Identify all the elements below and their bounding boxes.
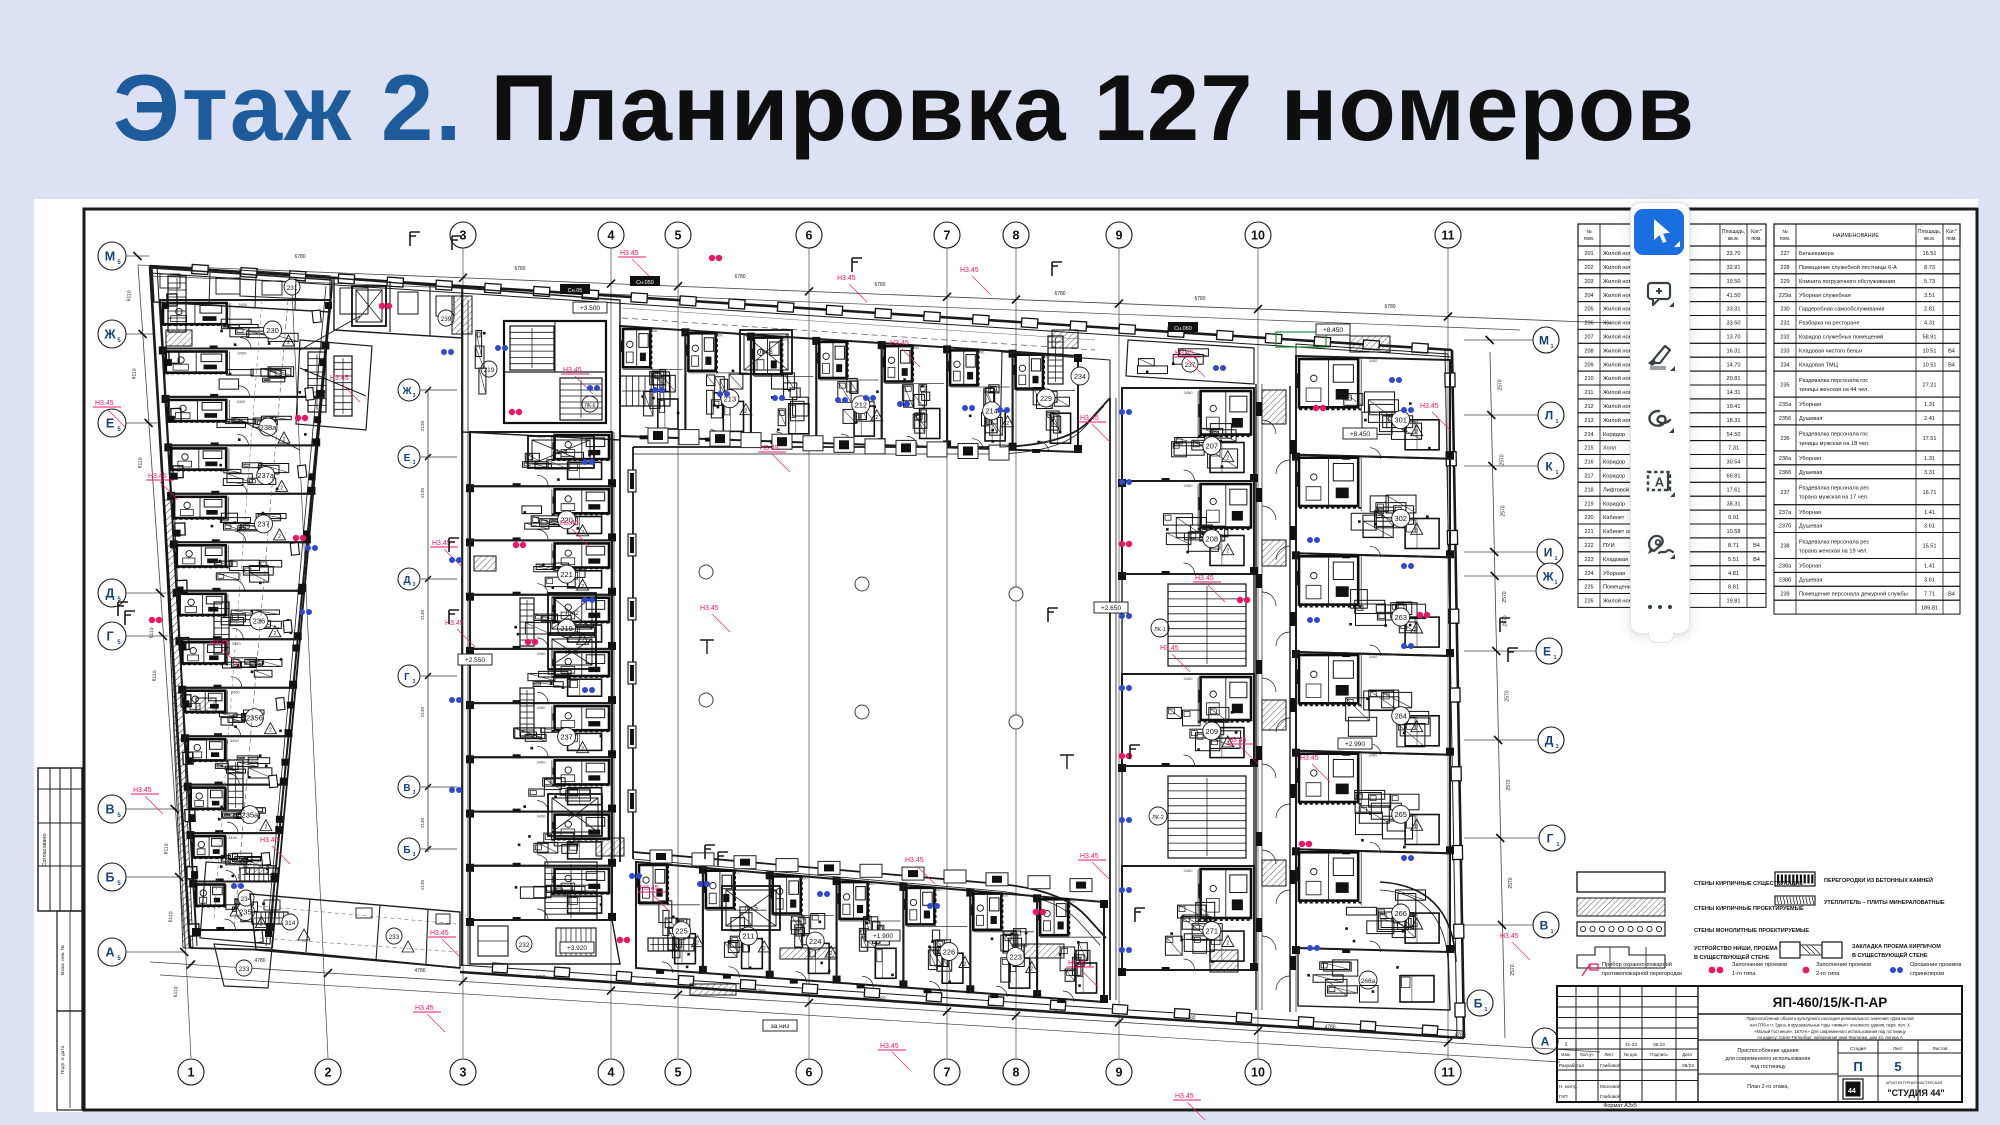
svg-text:6780: 6780: [874, 282, 885, 288]
svg-text:2: 2: [1006, 421, 1009, 427]
svg-text:302: 302: [1394, 514, 1407, 523]
svg-text:2570: 2570: [1503, 615, 1509, 626]
svg-text:237а: 237а: [1779, 510, 1792, 516]
svg-text:№ док.: № док.: [1624, 1052, 1638, 1057]
svg-text:Ж: Ж: [103, 328, 116, 342]
svg-text:7: 7: [944, 1066, 951, 1080]
svg-text:7.71: 7.71: [1924, 591, 1935, 597]
svg-text:6: 6: [806, 229, 813, 243]
svg-text:Кладовая чистого белья: Кладовая чистого белья: [1799, 348, 1862, 354]
svg-text:8: 8: [1013, 1066, 1020, 1080]
svg-text:Н3.45: Н3.45: [1420, 403, 1439, 410]
svg-text:6110: 6110: [168, 911, 175, 922]
svg-text:Н3.45: Н3.45: [148, 473, 167, 480]
svg-text:Н3.45: Н3.45: [95, 400, 114, 407]
svg-text:209: 209: [1206, 727, 1219, 736]
svg-text:3450: 3450: [537, 759, 547, 764]
svg-text:Кабинет: Кабинет: [1603, 515, 1625, 521]
svg-text:3: 3: [413, 393, 416, 399]
svg-text:229: 229: [1040, 396, 1052, 403]
svg-text:Уборная: Уборная: [1799, 564, 1821, 570]
svg-text:"СТУДИЯ 44": "СТУДИЯ 44": [1887, 1088, 1944, 1098]
svg-text:2: 2: [325, 1066, 332, 1080]
svg-text:2: 2: [287, 340, 290, 346]
svg-text:66.81: 66.81: [1727, 474, 1741, 480]
svg-text:3450: 3450: [1369, 654, 1379, 659]
svg-text:Н3.45: Н3.45: [210, 640, 229, 647]
svg-text:Подп. и дата: Подп. и дата: [60, 1046, 66, 1075]
svg-text:Бельекамера: Бельекамера: [1799, 251, 1835, 257]
svg-text:209: 209: [1584, 362, 1593, 368]
svg-text:41.50: 41.50: [1727, 293, 1741, 299]
svg-text:Душевая: Душевая: [1799, 524, 1822, 530]
svg-text:6780: 6780: [734, 274, 745, 280]
svg-text:230: 230: [1780, 307, 1789, 313]
svg-text:3: 3: [460, 1066, 467, 1080]
svg-text:263: 263: [1394, 613, 1407, 622]
svg-text:264: 264: [1394, 712, 1407, 721]
svg-text:ЯП-460/15/К-П-АР: ЯП-460/15/К-П-АР: [1773, 995, 1888, 1010]
svg-text:2130: 2130: [420, 487, 425, 498]
svg-text:+8.450: +8.450: [1350, 431, 1370, 438]
svg-text:тиницы мужская на 18 чел.: тиницы мужская на 18 чел.: [1799, 441, 1870, 447]
svg-text:4780: 4780: [254, 958, 265, 964]
svg-text:3450: 3450: [1184, 868, 1194, 873]
svg-text:Н3.45: Н3.45: [563, 367, 582, 374]
svg-text:3: 3: [413, 790, 416, 796]
svg-text:3450: 3450: [1184, 390, 1194, 395]
svg-text:15.51: 15.51: [1923, 544, 1937, 550]
svg-text:58.91: 58.91: [1923, 335, 1937, 341]
svg-text:211: 211: [742, 932, 754, 941]
svg-text:Н3.45: Н3.45: [880, 1043, 899, 1050]
svg-text:Кат.*: Кат.*: [1751, 229, 1762, 235]
svg-text:Уборная: Уборная: [1799, 402, 1821, 408]
svg-text:Г: Г: [404, 672, 410, 683]
svg-text:14.31: 14.31: [1727, 390, 1741, 396]
svg-text:2: 2: [964, 962, 967, 968]
svg-text:3450: 3450: [999, 893, 1009, 898]
svg-text:1: 1: [1555, 744, 1558, 750]
svg-text:189.81: 189.81: [1921, 605, 1938, 611]
svg-text:05/23: 05/23: [1682, 1063, 1694, 1068]
svg-text:220: 220: [1584, 515, 1593, 521]
svg-text:233: 233: [239, 966, 250, 973]
svg-text:8: 8: [1013, 229, 1020, 243]
svg-text:301: 301: [1394, 416, 1407, 425]
svg-text:3450: 3450: [732, 870, 742, 875]
svg-text:4780: 4780: [414, 968, 425, 974]
svg-text:кв.м.: кв.м.: [1924, 236, 1935, 242]
svg-text:265: 265: [1394, 810, 1407, 819]
svg-text:+2.650: +2.650: [1101, 605, 1121, 612]
svg-text:8.73: 8.73: [1924, 265, 1935, 271]
svg-text:2: 2: [581, 747, 584, 753]
svg-text:5: 5: [675, 1066, 682, 1080]
svg-text:33.70: 33.70: [1727, 251, 1741, 257]
svg-text:3450: 3450: [1184, 676, 1194, 681]
svg-text:3450: 3450: [232, 641, 242, 646]
svg-text:Лп-5: Лп-5: [744, 905, 758, 912]
svg-text:торана мужская на 17 чел.: торана мужская на 17 чел.: [1799, 495, 1869, 501]
svg-text:Н3.45: Н3.45: [445, 620, 464, 627]
svg-text:6110: 6110: [131, 368, 138, 379]
svg-text:41-23: 41-23: [1625, 1042, 1637, 1047]
svg-text:Н3.45: Н3.45: [1175, 350, 1194, 357]
svg-text:В: В: [403, 783, 410, 794]
svg-text:2: 2: [1415, 923, 1418, 929]
svg-text:2570: 2570: [1506, 779, 1512, 790]
svg-text:211: 211: [1585, 390, 1594, 396]
svg-text:2: 2: [875, 415, 878, 421]
svg-text:2: 2: [696, 941, 699, 947]
svg-text:Лп-1: Лп-1: [565, 649, 579, 656]
svg-text:1.31: 1.31: [1924, 402, 1935, 408]
svg-text:Кол.уч: Кол.уч: [1580, 1052, 1593, 1057]
svg-text:Уборная служебная: Уборная служебная: [1799, 293, 1851, 299]
svg-text:Н3.45: Н3.45: [1080, 415, 1099, 422]
svg-text:противопожарной перегородки: противопожарной перегородки: [1602, 970, 1682, 977]
svg-text:2: 2: [265, 825, 268, 831]
svg-text:ПЕРЕГОРОДКИ ИЗ БЕТОННЫХ КАМНЕЙ: ПЕРЕГОРОДКИ ИЗ БЕТОННЫХ КАМНЕЙ: [1824, 876, 1933, 884]
svg-text:Раздевалка персонала гос: Раздевалка персонала гос: [1799, 432, 1868, 438]
svg-text:20.81: 20.81: [1727, 376, 1741, 382]
svg-text:Приспособление объекта культур: Приспособление объекта культурного насле…: [1746, 1016, 1914, 1021]
svg-text:6: 6: [806, 1066, 813, 1080]
svg-text:Ж: Ж: [1542, 570, 1554, 584]
svg-text:торана женская на 19 чел.: торана женская на 19 чел.: [1799, 549, 1868, 555]
svg-text:3450: 3450: [1066, 898, 1076, 903]
svg-text:Д: Д: [1545, 734, 1554, 748]
svg-text:Д: Д: [403, 575, 410, 586]
svg-text:2: 2: [1415, 726, 1418, 732]
svg-text:3450: 3450: [537, 705, 547, 710]
svg-text:3450: 3450: [648, 328, 658, 333]
svg-text:7.31: 7.31: [1728, 446, 1739, 452]
svg-text:3: 3: [413, 852, 416, 858]
svg-text:4.31: 4.31: [1924, 321, 1935, 327]
svg-text:В4: В4: [1948, 362, 1955, 368]
svg-text:1: 1: [1565, 1042, 1568, 1048]
svg-text:238а: 238а: [260, 423, 278, 432]
svg-text:218: 218: [1584, 487, 1593, 493]
svg-text:221: 221: [560, 570, 573, 579]
svg-text:6780: 6780: [1194, 296, 1205, 302]
svg-text:5: 5: [1894, 1059, 1901, 1074]
svg-text:239: 239: [1780, 591, 1789, 597]
svg-text:Площадь,: Площадь,: [1722, 229, 1745, 235]
svg-text:204: 204: [1584, 293, 1593, 299]
svg-text:Коридор: Коридор: [1603, 432, 1625, 438]
svg-text:3450: 3450: [799, 875, 809, 880]
svg-text:В4: В4: [1753, 557, 1760, 563]
svg-text:225: 225: [675, 927, 688, 936]
svg-text:10.58: 10.58: [1727, 529, 1741, 535]
svg-text:1: 1: [1554, 556, 1557, 562]
svg-text:План 2-го этажа,: План 2-го этажа,: [1747, 1084, 1789, 1090]
svg-text:Уборная: Уборная: [1799, 510, 1821, 516]
svg-text:В4: В4: [1948, 591, 1955, 597]
svg-text:Взам. инв. №: Взам. инв. №: [60, 945, 66, 975]
svg-text:+8.450: +8.450: [1323, 327, 1343, 334]
svg-text:38.31: 38.31: [1727, 501, 1741, 507]
svg-text:237а: 237а: [257, 471, 275, 480]
svg-text:3.61: 3.61: [1924, 578, 1935, 584]
svg-text:пом.: пом.: [1780, 236, 1790, 242]
svg-text:235: 235: [239, 907, 252, 916]
svg-text:Д: Д: [106, 587, 115, 601]
svg-text:8.81: 8.81: [1728, 585, 1739, 591]
svg-text:3450: 3450: [1369, 358, 1379, 363]
svg-text:Кат.*: Кат.*: [1946, 229, 1957, 235]
svg-text:Коридор: Коридор: [1603, 474, 1625, 480]
svg-text:Листов: Листов: [1933, 1046, 1948, 1051]
svg-text:6110: 6110: [152, 670, 159, 681]
svg-text:201: 201: [1584, 251, 1593, 257]
svg-text:3450: 3450: [932, 887, 942, 892]
svg-text:К: К: [1545, 460, 1553, 474]
svg-text:1: 1: [1555, 419, 1558, 425]
svg-text:230: 230: [266, 326, 279, 335]
svg-text:3450: 3450: [537, 814, 547, 819]
svg-text:18.31: 18.31: [1727, 418, 1741, 424]
svg-text:Коридор: Коридор: [1603, 501, 1625, 507]
svg-text:217: 217: [1584, 474, 1593, 480]
svg-text:3: 3: [413, 679, 416, 685]
svg-text:+2.550: +2.550: [465, 657, 485, 664]
svg-text:213: 213: [1584, 418, 1593, 424]
svg-text:2: 2: [1415, 824, 1418, 830]
svg-text:3450: 3450: [228, 835, 238, 840]
svg-text:2130: 2130: [420, 817, 425, 828]
svg-text:232: 232: [1780, 335, 1789, 341]
svg-text:Коридор служебных помещений: Коридор служебных помещений: [1799, 334, 1883, 341]
svg-text:6780: 6780: [294, 254, 305, 260]
svg-text:A: A: [1655, 475, 1665, 490]
svg-text:9: 9: [1116, 229, 1123, 243]
svg-text:Помещение персонала дежурной с: Помещение персонала дежурной службы: [1799, 590, 1908, 597]
svg-text:Уборная: Уборная: [1799, 456, 1821, 462]
svg-text:1: 1: [1554, 580, 1557, 586]
svg-text:+3.500: +3.500: [580, 305, 600, 312]
svg-text:М: М: [105, 250, 115, 264]
svg-text:266: 266: [1394, 909, 1407, 918]
svg-text:2: 2: [1226, 941, 1229, 947]
svg-text:226: 226: [1584, 599, 1593, 605]
svg-text:2130: 2130: [420, 420, 425, 431]
svg-text:208: 208: [1584, 348, 1593, 354]
svg-text:234: 234: [1780, 362, 1789, 368]
svg-text:2: 2: [1415, 528, 1418, 534]
svg-text:3: 3: [413, 582, 416, 588]
svg-text:кв.м.: кв.м.: [1728, 236, 1739, 242]
svg-text:Н3.45: Н3.45: [1300, 755, 1319, 762]
svg-text:2: 2: [278, 534, 281, 540]
svg-text:2570: 2570: [1510, 964, 1516, 975]
svg-text:Кладовая: Кладовая: [1603, 557, 1628, 563]
svg-text:2: 2: [581, 530, 584, 536]
svg-text:3450: 3450: [236, 399, 246, 404]
svg-text:4: 4: [608, 229, 615, 243]
svg-text:Уборная: Уборная: [1603, 571, 1625, 577]
svg-text:216: 216: [1584, 460, 1593, 466]
svg-text:Ж: Ж: [401, 386, 412, 397]
svg-text:227: 227: [1780, 251, 1789, 257]
svg-text:3450: 3450: [237, 351, 247, 356]
svg-text:232: 232: [519, 942, 530, 949]
svg-text:2: 2: [274, 631, 277, 637]
svg-text:Б: Б: [1474, 997, 1483, 1011]
svg-text:за.низ: за.низ: [771, 1023, 790, 1030]
svg-text:Н3.45: Н3.45: [1195, 575, 1214, 582]
svg-text:30.54: 30.54: [1727, 460, 1741, 466]
svg-text:3450: 3450: [1369, 753, 1379, 758]
svg-text:229а: 229а: [1779, 293, 1792, 299]
svg-text:32.91: 32.91: [1727, 265, 1741, 271]
svg-text:Сн.05: Сн.05: [568, 288, 583, 294]
svg-text:6780: 6780: [1054, 291, 1065, 297]
svg-text:9: 9: [1116, 1066, 1123, 1080]
svg-text:Н3.45: Н3.45: [430, 930, 449, 937]
svg-text:2130: 2130: [420, 706, 425, 717]
svg-text:Н3.45: Н3.45: [640, 885, 659, 892]
svg-text:+2.990: +2.990: [1345, 741, 1365, 748]
svg-text:спринклером: спринклером: [1910, 971, 1944, 977]
svg-text:Орошение проемов: Орошение проемов: [1910, 962, 1961, 968]
svg-text:239: 239: [441, 316, 452, 323]
svg-text:Душевая: Душевая: [1799, 578, 1822, 584]
svg-text:19.41: 19.41: [1727, 404, 1741, 410]
svg-text:236б: 236б: [1779, 470, 1792, 476]
svg-text:224: 224: [1584, 571, 1593, 577]
svg-text:237: 237: [1185, 362, 1196, 369]
svg-text:233: 233: [389, 934, 400, 941]
svg-text:2570: 2570: [1502, 591, 1508, 602]
svg-text:Прибор охранно-пожарной: Прибор охранно-пожарной: [1602, 961, 1672, 968]
svg-text:№: №: [1782, 229, 1787, 235]
svg-text:под гостиницу: под гостиницу: [1750, 1064, 1786, 1070]
svg-text:Согласовано: Согласовано: [42, 833, 48, 866]
svg-text:Глибовой: Глибовой: [1600, 1093, 1621, 1099]
svg-text:Заполнение проемов: Заполнение проемов: [1732, 962, 1787, 968]
svg-text:3450: 3450: [714, 332, 724, 337]
svg-text:1: 1: [1553, 655, 1556, 661]
svg-text:Лп-2: Лп-2: [565, 610, 579, 617]
svg-text:2570: 2570: [1500, 505, 1506, 516]
svg-text:7: 7: [944, 229, 951, 243]
svg-text:2-го типа: 2-го типа: [1816, 971, 1840, 977]
svg-text:224: 224: [809, 937, 822, 946]
svg-text:3.51: 3.51: [1924, 293, 1935, 299]
svg-text:Н3.45: Н3.45: [560, 520, 579, 527]
svg-text:Раздевалка персонала рес: Раздевалка персонала рес: [1799, 539, 1870, 545]
svg-text:05.23: 05.23: [1653, 1042, 1665, 1047]
svg-text:236: 236: [1780, 436, 1789, 442]
svg-text:2130: 2130: [420, 609, 425, 620]
svg-text:Н3.45: Н3.45: [260, 837, 279, 844]
svg-text:АРХИТЕКТУРНАЯ МАСТЕРСКАЯ: АРХИТЕКТУРНАЯ МАСТЕРСКАЯ: [1886, 1081, 1943, 1085]
svg-text:Глибовой: Глибовой: [1600, 1062, 1621, 1068]
svg-text:236: 236: [253, 617, 266, 626]
svg-text:2130: 2130: [420, 879, 425, 890]
svg-text:2: 2: [1415, 430, 1418, 436]
svg-text:Холл: Холл: [1603, 446, 1616, 452]
svg-text:2: 2: [1030, 967, 1033, 973]
svg-text:1: 1: [1556, 842, 1559, 848]
svg-text:Б: Б: [403, 845, 410, 856]
svg-text:СТЕНЫ МОНОЛИТНЫЕ ПРОЕКТИРУЕМЫЕ: СТЕНЫ МОНОЛИТНЫЕ ПРОЕКТИРУЕМЫЕ: [1694, 928, 1809, 934]
svg-text:Г: Г: [1547, 832, 1554, 846]
svg-text:Н3.45: Н3.45: [1160, 645, 1179, 652]
svg-text:19.50: 19.50: [1727, 279, 1741, 285]
svg-text:Гардеробная самообслуживания: Гардеробная самообслуживания: [1799, 307, 1885, 313]
svg-text:Разработал: Разработал: [1559, 1063, 1584, 1068]
svg-text:2570: 2570: [1499, 454, 1505, 465]
svg-text:Н3.45: Н3.45: [837, 275, 856, 282]
svg-text:6110: 6110: [126, 290, 133, 301]
svg-text:Изм.: Изм.: [1561, 1052, 1570, 1057]
svg-text:Душевая: Душевая: [1799, 416, 1822, 422]
svg-text:пом.: пом.: [1946, 236, 1956, 242]
svg-text:3.31: 3.31: [1924, 470, 1935, 476]
svg-text:214: 214: [985, 407, 998, 416]
svg-text:11: 11: [1441, 229, 1454, 243]
svg-text:Н. контр.: Н. контр.: [1559, 1084, 1578, 1089]
svg-text:11: 11: [1441, 1066, 1454, 1080]
svg-text:Формат А3х5: Формат А3х5: [1603, 1103, 1637, 1109]
svg-text:В: В: [105, 803, 114, 817]
svg-text:2: 2: [1415, 627, 1418, 633]
svg-text:Н3.45: Н3.45: [905, 857, 924, 864]
svg-text:2: 2: [269, 728, 272, 734]
svg-text:2.81: 2.81: [1924, 307, 1935, 313]
svg-text:4: 4: [608, 1066, 615, 1080]
svg-text:тиницы женская на 44 чел.: тиницы женская на 44 чел.: [1799, 387, 1869, 393]
svg-text:203: 203: [1584, 279, 1593, 285]
svg-text:И: И: [1544, 546, 1553, 560]
svg-text:215: 215: [1584, 446, 1593, 452]
svg-text:для современного использования: для современного использования: [1726, 1056, 1811, 1062]
svg-text:Кладовая ТМЦ: Кладовая ТМЦ: [1799, 362, 1839, 368]
svg-text:№: №: [1586, 229, 1591, 235]
svg-text:Мозговой: Мозговой: [1600, 1083, 1621, 1089]
svg-text:А: А: [105, 946, 114, 960]
svg-text:В: В: [1540, 919, 1549, 933]
svg-text:1: 1: [188, 1066, 195, 1080]
svg-text:6780: 6780: [514, 266, 525, 272]
svg-text:1-го типа: 1-го типа: [1732, 971, 1756, 977]
svg-text:1: 1: [1550, 344, 1553, 350]
svg-text:нач.ГПб-х гг. Здесь в крушевал: нач.ГПб-х гг. Здесь в крушевальные годы …: [1750, 1022, 1910, 1027]
svg-text:238б: 238б: [1779, 578, 1792, 584]
svg-text:1: 1: [1550, 929, 1553, 935]
svg-text:Н3.45: Н3.45: [620, 250, 639, 257]
svg-text:Н3.45: Н3.45: [1500, 933, 1519, 940]
svg-text:+1.900: +1.900: [873, 933, 893, 940]
svg-text:пом.: пом.: [1751, 236, 1761, 242]
svg-text:2: 2: [745, 409, 748, 415]
svg-text:Раздевалка персонала рес: Раздевалка персонала рес: [1799, 486, 1870, 492]
svg-text:223: 223: [1584, 557, 1593, 563]
svg-text:19.81: 19.81: [1727, 599, 1741, 605]
svg-text:Н3.45: Н3.45: [700, 605, 719, 612]
svg-text:Лист: Лист: [1893, 1046, 1904, 1051]
svg-text:235а: 235а: [1779, 402, 1792, 408]
svg-text:237: 237: [1780, 490, 1789, 496]
svg-text:ЛК-1: ЛК-1: [1154, 627, 1166, 633]
svg-text:6110: 6110: [163, 843, 170, 854]
svg-text:3450: 3450: [866, 881, 876, 886]
